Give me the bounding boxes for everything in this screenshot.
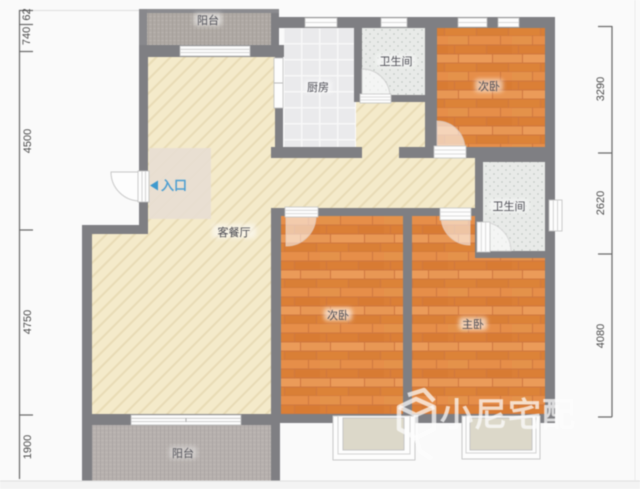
svg-text:厨房: 厨房 <box>307 81 329 94</box>
svg-text:客餐厅: 客餐厅 <box>218 225 251 239</box>
svg-text:4500: 4500 <box>22 129 34 153</box>
svg-text:次卧: 次卧 <box>327 308 349 322</box>
svg-text:阳台: 阳台 <box>172 446 194 460</box>
svg-text:卫生间: 卫生间 <box>493 199 526 213</box>
svg-text:4750: 4750 <box>22 310 34 334</box>
svg-text:小尼宅配: 小尼宅配 <box>440 396 576 433</box>
svg-text:次卧: 次卧 <box>478 79 500 93</box>
svg-text:主卧: 主卧 <box>462 318 484 331</box>
svg-text:4080: 4080 <box>595 324 607 348</box>
svg-text:1900: 1900 <box>22 435 34 459</box>
svg-text:阳台: 阳台 <box>197 13 219 27</box>
svg-text:62: 62 <box>21 8 33 20</box>
svg-text:740: 740 <box>21 27 33 45</box>
svg-text:卫生间: 卫生间 <box>380 54 413 68</box>
svg-text:入口: 入口 <box>161 178 187 193</box>
svg-text:2620: 2620 <box>595 191 607 215</box>
svg-text:3290: 3290 <box>595 77 607 101</box>
